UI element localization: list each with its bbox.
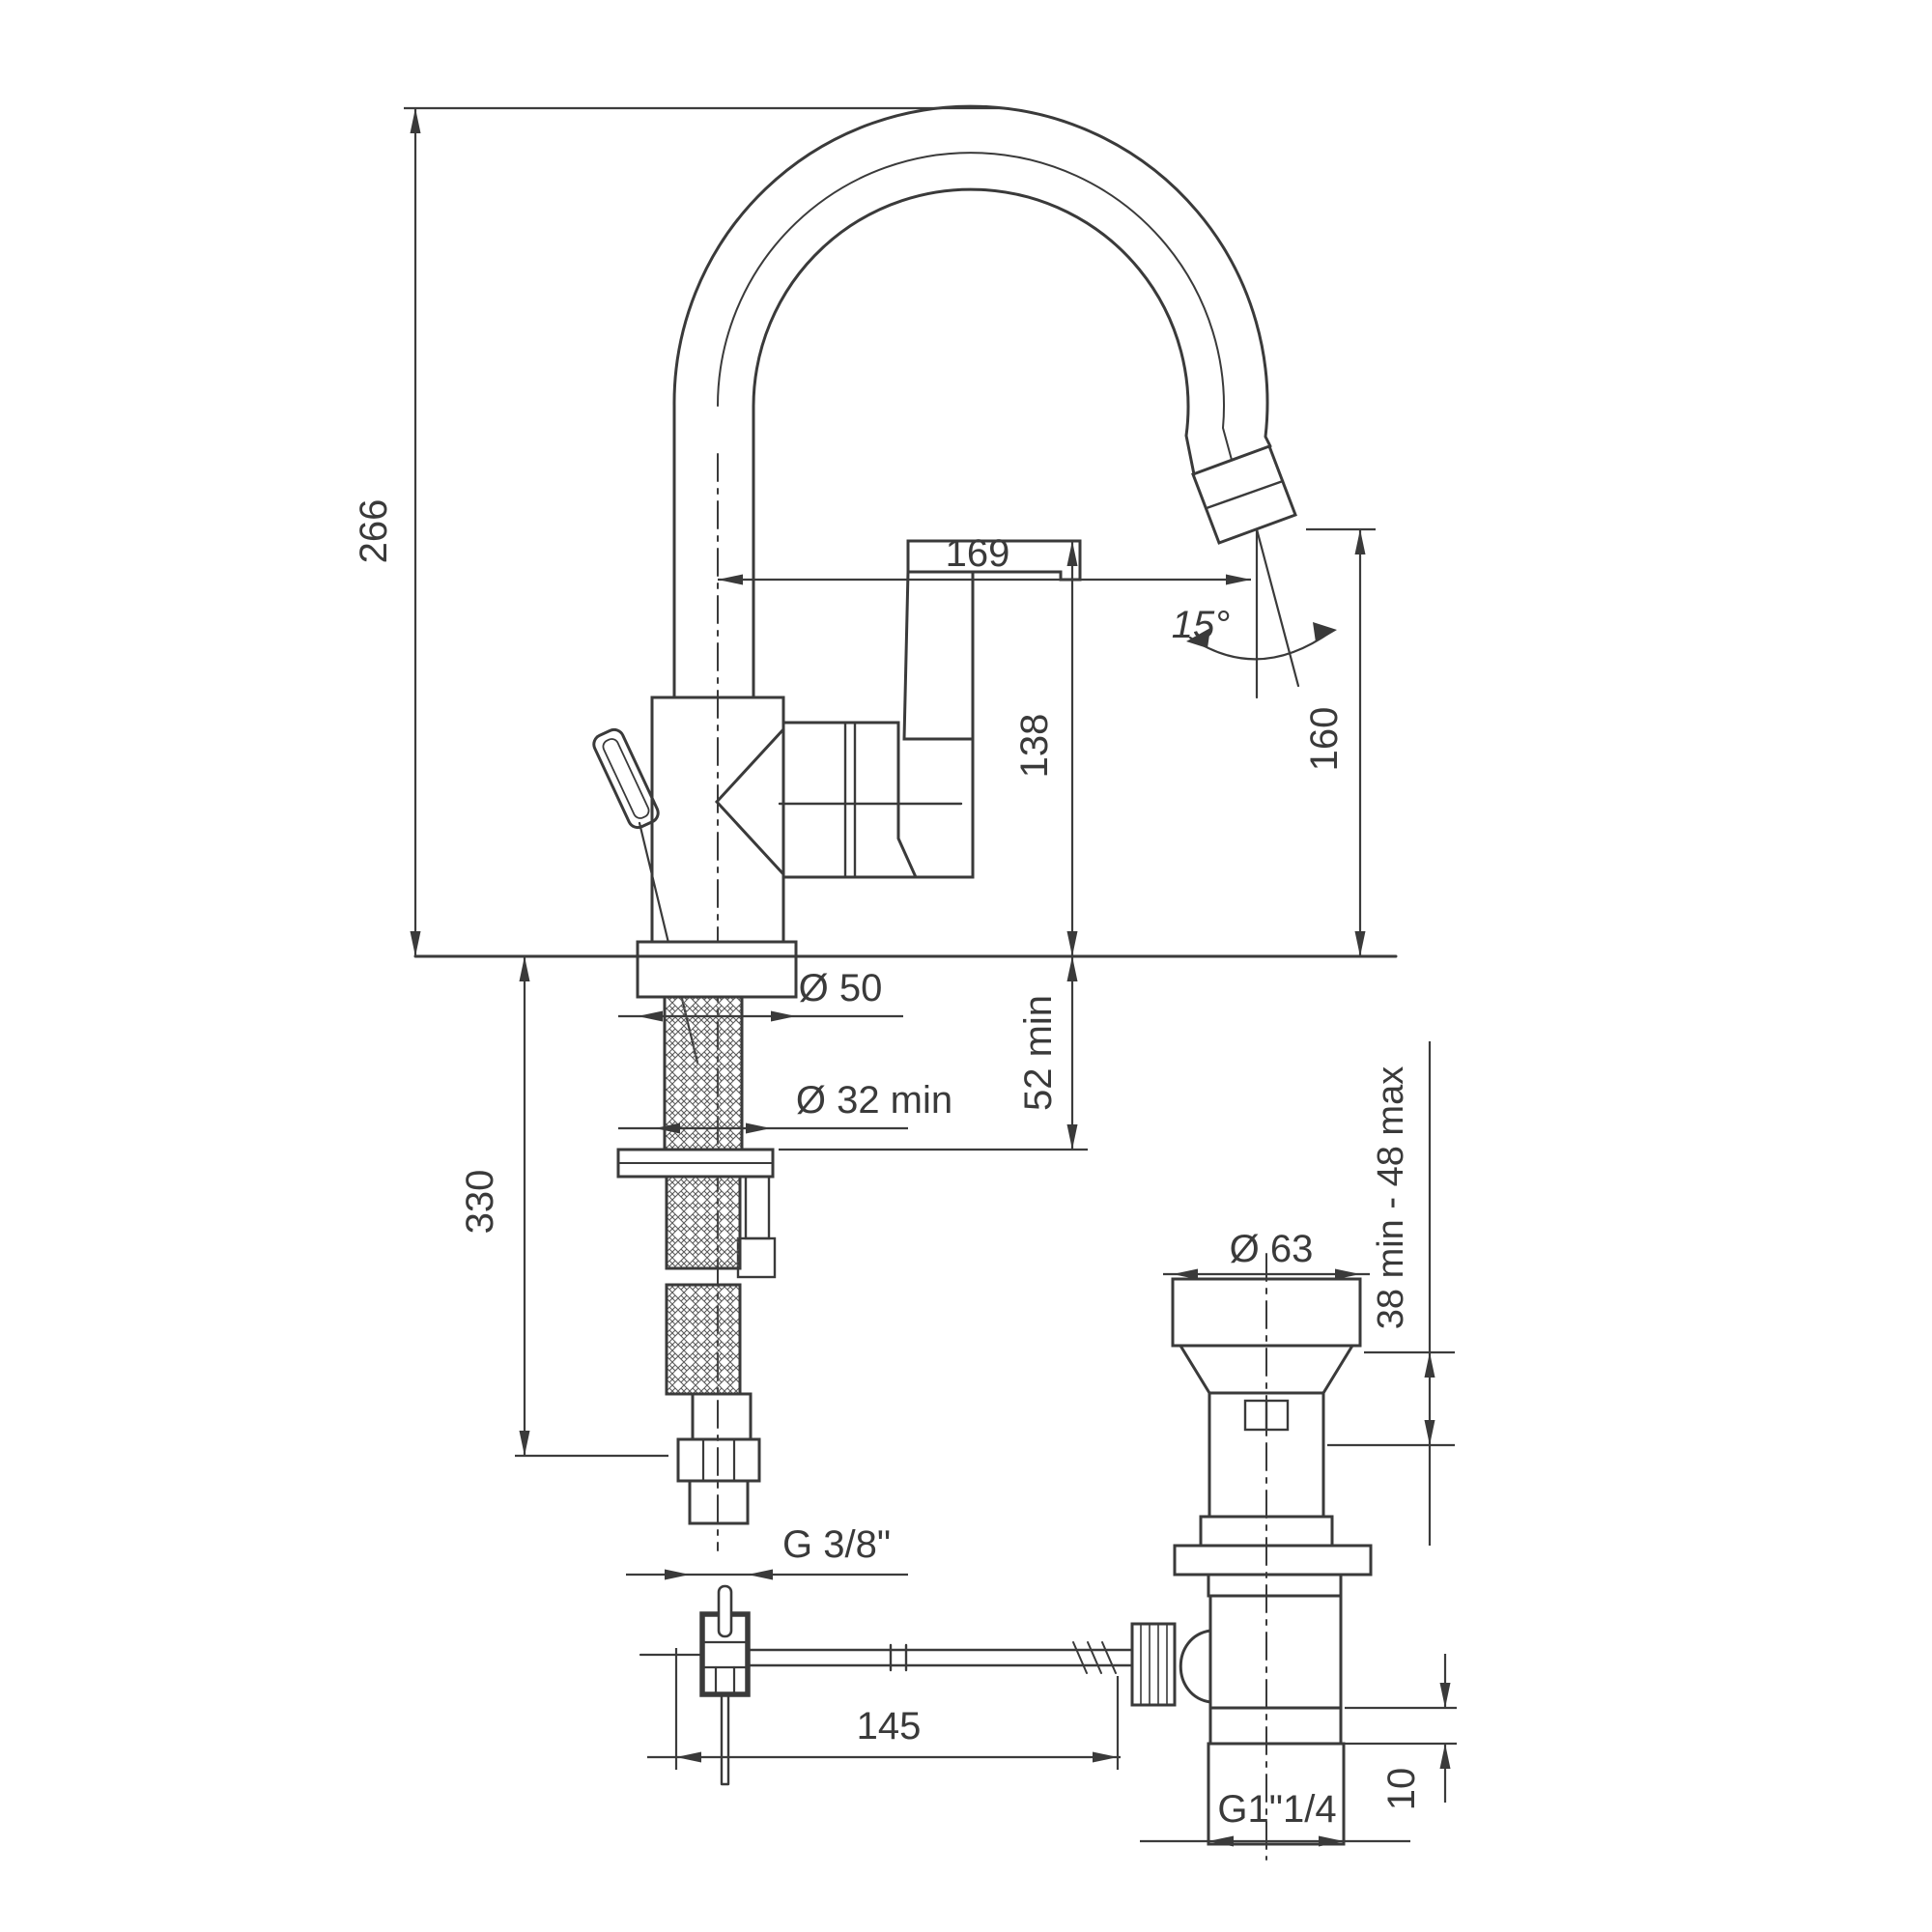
dim-rod-to-drain-label: 145: [857, 1705, 922, 1747]
base-flange: [638, 942, 796, 997]
dim-overall-height-label: 266: [353, 499, 395, 564]
dimension-labels: 266 169 15° 160 138 Ø 50 Ø 32 min 52 min…: [353, 499, 1423, 1831]
supply-hose: [667, 1177, 740, 1394]
drain-flange: [1175, 1546, 1371, 1596]
dim-hose-length-label: 330: [459, 1170, 501, 1235]
dim-waste-cap-diameter-label: Ø 63: [1230, 1228, 1314, 1270]
mixer-cartridge: [780, 723, 961, 877]
dim-handle-height-label: 138: [1013, 714, 1056, 779]
dim-outlet-angle-label: 15°: [1172, 604, 1231, 646]
arrowheads: [411, 108, 1451, 1847]
dim-clamp-range-label: 38 min - 48 max: [1371, 1066, 1411, 1329]
mounting-washer: [618, 1150, 773, 1177]
dim-waste-thread-label: G1"1/4: [1217, 1788, 1336, 1831]
aerator-nozzle: [1193, 446, 1295, 543]
horizontal-rod: [748, 1642, 1132, 1673]
dimension-lines: [404, 108, 1457, 1841]
dim-deck-clearance-label: 52 min: [1017, 995, 1060, 1111]
dim-base-diameter-label: Ø 50: [799, 967, 883, 1009]
dim-mounting-hole-label: Ø 32 min: [796, 1079, 952, 1122]
faucet-dimension-drawing: 266 169 15° 160 138 Ø 50 Ø 32 min 52 min…: [0, 0, 1932, 1932]
pull-rod-tube: [738, 1177, 775, 1277]
dim-supply-thread-label: G 3/8": [782, 1523, 891, 1566]
knurled-coupling: [1132, 1624, 1210, 1705]
dim-spout-reach-label: 169: [946, 532, 1010, 575]
dim-outlet-height-label: 160: [1303, 707, 1346, 772]
lever-handle: [904, 541, 1080, 877]
dim-waste-step-label: 10: [1380, 1768, 1423, 1811]
technical-drawing-page: 266 169 15° 160 138 Ø 50 Ø 32 min 52 min…: [0, 0, 1932, 1932]
